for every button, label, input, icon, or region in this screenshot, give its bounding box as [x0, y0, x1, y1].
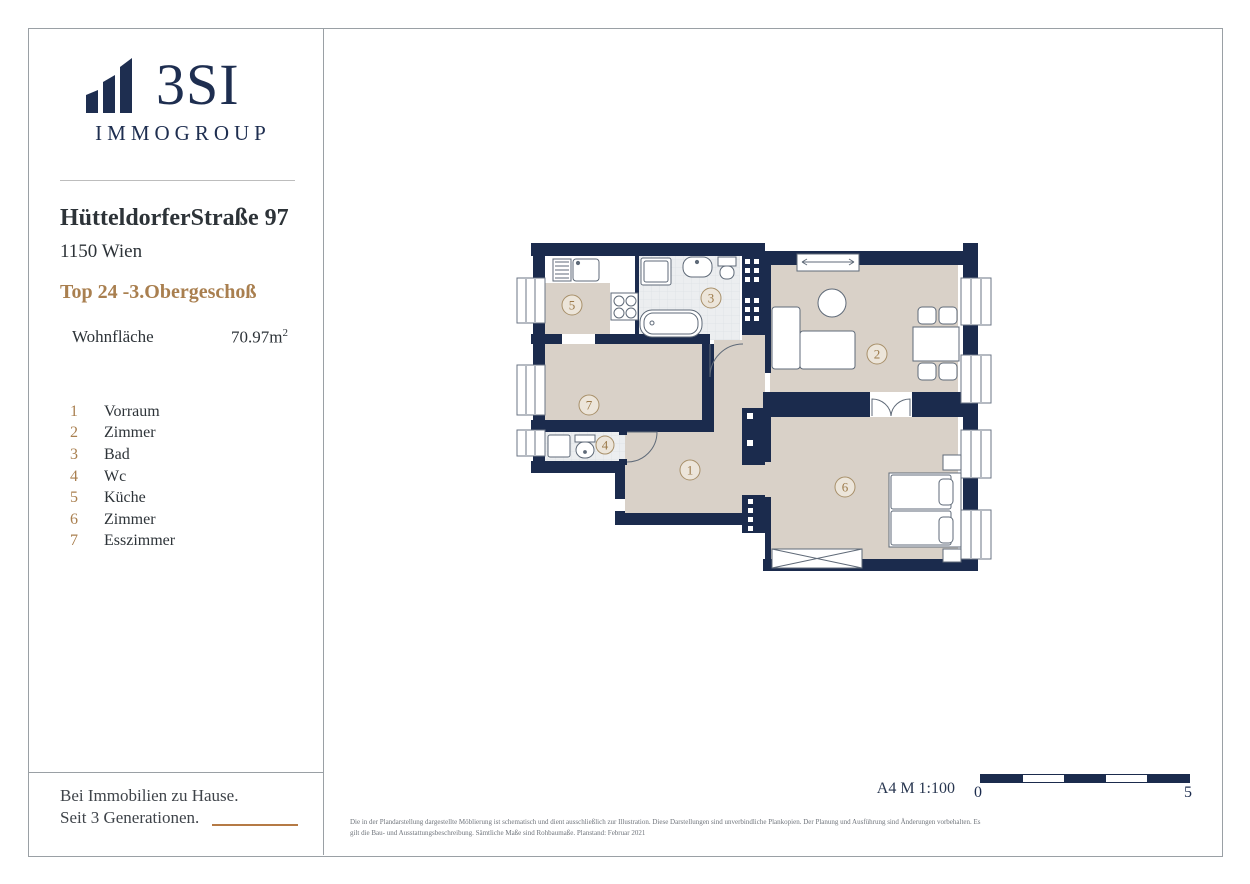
nightstand-icon — [943, 455, 961, 470]
passage-floor — [742, 335, 765, 408]
living-area-label: Wohnfläche — [72, 327, 154, 348]
toilet-cistern-icon — [718, 257, 736, 266]
room-marker-1: 1 — [687, 463, 694, 478]
logo-bars-icon — [86, 55, 150, 113]
address-city: 1150 Wien — [60, 241, 142, 263]
living-area-value: 70.97m2 — [231, 327, 288, 348]
washing-machine-icon — [548, 435, 570, 457]
legend-item: 1Vorraum — [70, 401, 175, 423]
wc-toilet-icon — [576, 442, 594, 458]
legend-item: 7Esszimmer — [70, 531, 175, 553]
floor-plan: 1 2 3 4 5 6 7 — [515, 243, 995, 580]
brand-name: 3SI — [156, 57, 240, 113]
logo-divider — [60, 180, 295, 181]
legend-item: 6Zimmer — [70, 509, 175, 531]
room-marker-4: 4 — [602, 438, 609, 453]
sidebar-footer-divider — [29, 772, 323, 773]
entrance-door-opening — [615, 499, 625, 511]
shower-icon — [641, 258, 671, 285]
chair-icon — [939, 363, 957, 380]
chair-icon — [918, 307, 936, 324]
legend-item: 3Bad — [70, 444, 175, 466]
scale-bar — [980, 774, 1190, 783]
nightstand-icon — [943, 549, 961, 562]
unit-title: Top 24 -3.Obergeschoß — [60, 281, 257, 304]
room-marker-7: 7 — [586, 398, 593, 413]
dining-table-icon — [913, 327, 959, 361]
disclaimer-text: Die in der Plandarstellung dargestellte … — [350, 817, 983, 839]
pillow-icon — [939, 517, 953, 543]
format-scale-label: A4 M 1:100 — [855, 780, 955, 798]
legend-item: 4Wc — [70, 466, 175, 488]
scale-start-label: 0 — [974, 784, 982, 802]
round-table-icon — [818, 289, 846, 317]
tagline-line2: Seit 3 Generationen. — [60, 808, 199, 828]
floorplan-page: 3SI IMMOGROUP HütteldorferStraße 97 1150… — [0, 0, 1250, 884]
room-esszimmer-floor — [545, 344, 702, 420]
company-logo: 3SI — [86, 55, 276, 113]
chair-icon — [939, 307, 957, 324]
sidebar-divider — [323, 28, 324, 855]
tagline-line1: Bei Immobilien zu Hause. — [60, 786, 238, 806]
doorway-floor — [742, 462, 771, 497]
address-street: HütteldorferStraße 97 — [60, 205, 289, 232]
legend-item: 2Zimmer — [70, 423, 175, 445]
room-marker-5: 5 — [569, 298, 576, 313]
living-area-row: Wohnfläche 70.97m2 — [72, 327, 288, 348]
scale-end-label: 5 — [1184, 784, 1192, 802]
brand-subname: IMMOGROUP — [88, 121, 278, 146]
pillow-icon — [939, 479, 953, 505]
legend-item: 5Küche — [70, 487, 175, 509]
room-marker-2: 2 — [874, 347, 881, 362]
chair-icon — [918, 363, 936, 380]
toilet-icon — [720, 266, 734, 279]
room-marker-6: 6 — [842, 480, 849, 495]
room-marker-3: 3 — [708, 291, 715, 306]
room-legend: 1Vorraum 2Zimmer 3Bad 4Wc 5Küche 6Zimmer… — [70, 401, 175, 552]
tagline-rule — [212, 824, 298, 826]
wc-cistern-icon — [575, 435, 595, 442]
sofa-icon — [772, 307, 800, 369]
